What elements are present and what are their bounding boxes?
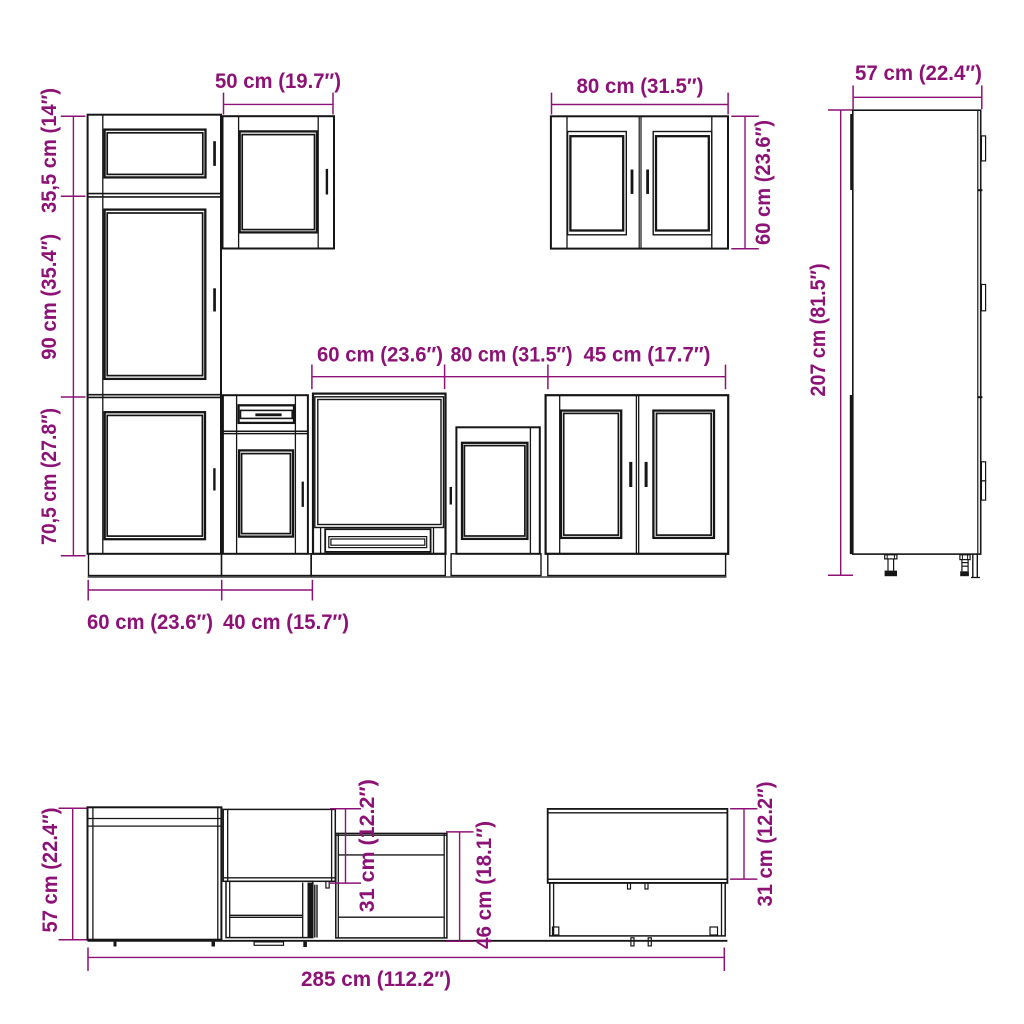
svg-text:31 cm (12.2″): 31 cm (12.2″) xyxy=(356,779,379,912)
svg-text:40 cm (15.7″): 40 cm (15.7″) xyxy=(223,611,349,634)
svg-text:60 cm (23.6″): 60 cm (23.6″) xyxy=(87,611,213,634)
svg-text:207 cm (81.5″): 207 cm (81.5″) xyxy=(807,264,830,397)
svg-text:90 cm (35.4″): 90 cm (35.4″) xyxy=(38,234,61,360)
svg-text:60 cm (23.6″): 60 cm (23.6″) xyxy=(317,344,443,367)
svg-text:285 cm (112.2″): 285 cm (112.2″) xyxy=(301,968,451,991)
svg-text:80 cm (31.5″): 80 cm (31.5″) xyxy=(451,344,573,367)
svg-text:45 cm (17.7″): 45 cm (17.7″) xyxy=(584,344,711,367)
svg-text:57 cm (22.4″): 57 cm (22.4″) xyxy=(39,808,62,933)
svg-text:50 cm (19.7″): 50 cm (19.7″) xyxy=(215,70,341,93)
svg-text:57 cm (22.4″): 57 cm (22.4″) xyxy=(855,62,982,85)
svg-text:80 cm (31.5″): 80 cm (31.5″) xyxy=(577,75,704,98)
svg-text:70,5 cm (27.8″): 70,5 cm (27.8″) xyxy=(38,408,61,545)
svg-text:46 cm (18.1″): 46 cm (18.1″) xyxy=(473,821,496,949)
svg-text:31 cm (12.2″): 31 cm (12.2″) xyxy=(754,782,777,907)
svg-text:60 cm (23.6″): 60 cm (23.6″) xyxy=(752,120,775,245)
svg-text:35,5 cm (14″): 35,5 cm (14″) xyxy=(38,88,61,213)
